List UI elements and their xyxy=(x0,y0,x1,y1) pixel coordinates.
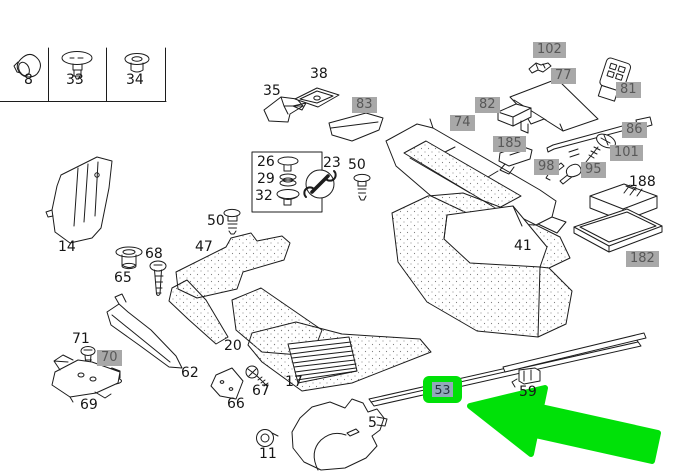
part-182-tray-drawing xyxy=(574,209,662,252)
part-label-17: 17 xyxy=(285,375,303,390)
part-label-20: 20 xyxy=(224,339,242,354)
part-82-drawing xyxy=(498,104,531,133)
part-label-81[interactable]: 81 xyxy=(616,82,641,98)
part-label-98[interactable]: 98 xyxy=(534,159,559,175)
parts-diagram-canvas: 8 33 34 35 38 83 74 102 77 81 82 86 185 … xyxy=(0,0,689,476)
part-label-47: 47 xyxy=(195,240,213,255)
part-label-50b: 50 xyxy=(207,214,225,229)
part-label-11: 11 xyxy=(259,447,277,462)
part-label-102[interactable]: 102 xyxy=(533,42,566,58)
part-14-drawing xyxy=(46,157,112,243)
part-label-77[interactable]: 77 xyxy=(551,68,576,84)
part-17-mat-drawing xyxy=(248,322,431,391)
part-label-182[interactable]: 182 xyxy=(626,251,659,267)
part-95-drawing xyxy=(566,149,581,177)
part-label-41: 41 xyxy=(514,239,532,254)
part-68-drawing xyxy=(150,261,166,296)
part-label-185[interactable]: 185 xyxy=(493,136,526,152)
part-label-23: 23 xyxy=(323,156,341,171)
part-83-drawing xyxy=(329,113,383,141)
part-label-5: 5 xyxy=(368,416,377,431)
part-label-95[interactable]: 95 xyxy=(581,162,606,178)
part-label-33: 33 xyxy=(66,73,84,88)
part-label-53[interactable]: 53 xyxy=(432,382,454,397)
part-66-plate-drawing xyxy=(211,368,243,399)
part-label-34: 34 xyxy=(126,73,144,88)
part-50a-drawing xyxy=(354,174,370,200)
part-11-plug-drawing xyxy=(257,430,279,447)
part-label-26: 26 xyxy=(257,155,275,170)
part-102-clip-drawing xyxy=(529,63,551,73)
part-label-69: 69 xyxy=(80,398,98,413)
part-label-8: 8 xyxy=(24,73,33,88)
part-label-70[interactable]: 70 xyxy=(97,350,122,366)
part-65-drawing xyxy=(116,247,142,269)
selection-arrow xyxy=(470,388,658,461)
part-label-82[interactable]: 82 xyxy=(475,97,500,113)
part-label-29: 29 xyxy=(257,172,275,187)
part-50b-drawing xyxy=(224,209,240,234)
part-label-83[interactable]: 83 xyxy=(352,97,377,113)
part-label-74[interactable]: 74 xyxy=(450,115,475,131)
part-label-86[interactable]: 86 xyxy=(622,122,647,138)
part-5-panel-drawing xyxy=(292,399,387,470)
part-label-32: 32 xyxy=(255,189,273,204)
part-label-67: 67 xyxy=(252,384,270,399)
part-label-66: 66 xyxy=(227,397,245,412)
part-label-71: 71 xyxy=(72,332,90,347)
part-label-50a: 50 xyxy=(348,158,366,173)
part-label-35: 35 xyxy=(263,84,281,99)
part-label-188: 188 xyxy=(629,175,656,190)
part-label-65: 65 xyxy=(114,271,132,286)
part-label-38: 38 xyxy=(310,67,328,82)
part-label-101[interactable]: 101 xyxy=(610,145,643,161)
part-34-drawing xyxy=(125,54,149,73)
part-label-14: 14 xyxy=(58,240,76,255)
diagram-line-art xyxy=(0,0,689,476)
part-label-59: 59 xyxy=(519,385,537,400)
part-77-drawing xyxy=(510,79,598,131)
part-label-68: 68 xyxy=(145,247,163,262)
selected-part-badge-53[interactable]: 53 xyxy=(423,376,462,403)
part-label-62: 62 xyxy=(181,366,199,381)
